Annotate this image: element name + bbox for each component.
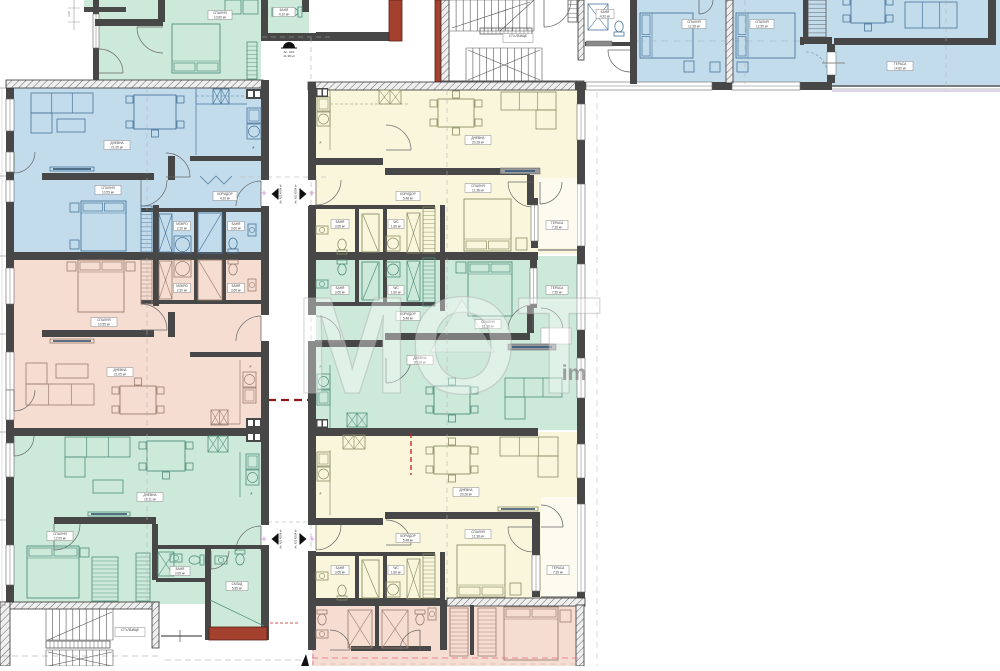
svg-text:3.05: 3.05 — [67, 11, 71, 17]
svg-text:1.80 м²: 1.80 м² — [391, 570, 401, 574]
svg-text:Ап. А21 43.84 м²: Ап. А21 43.84 м² — [280, 184, 283, 203]
svg-text:Ап. А21 43.84 м²: Ап. А21 43.84 м² — [295, 529, 298, 548]
svg-text:*: * — [319, 492, 322, 499]
svg-text:1.80 м²: 1.80 м² — [391, 224, 401, 228]
svg-text:21.05 м²: 21.05 м² — [111, 145, 123, 149]
svg-text:4.10 м²: 4.10 м² — [279, 12, 289, 16]
svg-text:14.80 м²: 14.80 м² — [894, 66, 906, 70]
svg-text:im: im — [562, 362, 587, 385]
svg-text:4.20 м²: 4.20 м² — [600, 14, 610, 18]
svg-text:20.28 м²: 20.28 м² — [472, 140, 484, 144]
svg-text:2.10 м²: 2.10 м² — [177, 226, 187, 230]
svg-text:СТЪЛБИЩЕ: СТЪЛБИЩЕ — [509, 34, 527, 38]
svg-text:21.05 м²: 21.05 м² — [114, 372, 126, 376]
svg-text:10.55 м²: 10.55 м² — [98, 322, 110, 326]
svg-text:3.65 м²: 3.65 м² — [335, 224, 345, 228]
svg-text:10.60 м²: 10.60 м² — [214, 15, 226, 19]
svg-text:5.85 м²: 5.85 м² — [232, 586, 242, 590]
svg-text:5.48 м²: 5.48 м² — [403, 196, 413, 200]
svg-text:20.28 м²: 20.28 м² — [460, 492, 472, 496]
svg-text:19.11 м²: 19.11 м² — [144, 497, 156, 501]
svg-text:3.95 м²: 3.95 м² — [175, 571, 185, 575]
svg-text:*: * — [250, 492, 253, 499]
svg-text:3.65 м²: 3.65 м² — [335, 570, 345, 574]
svg-text:12.28 м²: 12.28 м² — [688, 24, 700, 28]
svg-text:4.10 м²: 4.10 м² — [220, 196, 230, 200]
svg-text:3.60 м²: 3.60 м² — [231, 288, 241, 292]
svg-text:СТЪЛБИЩЕ: СТЪЛБИЩЕ — [121, 628, 139, 632]
svg-text:2.10 м²: 2.10 м² — [177, 288, 187, 292]
svg-text:*: * — [319, 141, 322, 148]
svg-text:7.35 м²: 7.35 м² — [553, 570, 563, 574]
svg-text:7.35 м²: 7.35 м² — [552, 225, 562, 229]
svg-text:11.38 м²: 11.38 м² — [472, 188, 484, 192]
svg-text:12.05 м²: 12.05 м² — [54, 536, 66, 540]
svg-text:3.60 м²: 3.60 м² — [231, 226, 241, 230]
svg-text:*: * — [249, 365, 252, 372]
svg-text:41.38 м²: 41.38 м² — [283, 54, 294, 58]
svg-text:Ап. А21 43.84 м²: Ап. А21 43.84 м² — [295, 184, 298, 203]
svg-text:Ап. А21 43.84 м²: Ап. А21 43.84 м² — [280, 529, 283, 548]
svg-text:12.55 м²: 12.55 м² — [756, 24, 768, 28]
svg-text:11.38 м²: 11.38 м² — [472, 534, 484, 538]
svg-text:5.48 м²: 5.48 м² — [403, 538, 413, 542]
svg-text:*: * — [252, 146, 255, 153]
svg-text:10.55 м²: 10.55 м² — [102, 190, 114, 194]
